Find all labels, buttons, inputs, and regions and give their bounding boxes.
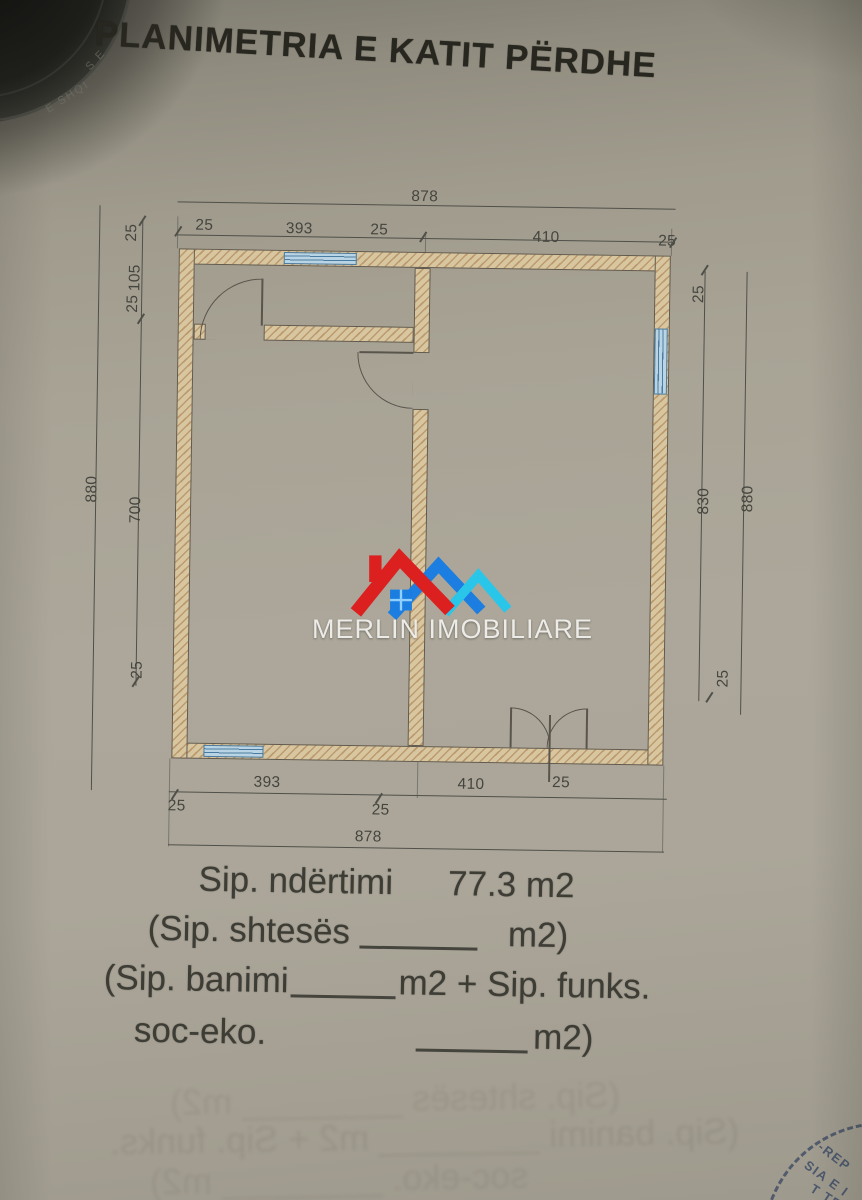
area-line-banimi: (Sip. banimim2 + Sip. funks.	[103, 958, 650, 1008]
area-line-shteses: (Sip. shtesësm2)	[147, 909, 568, 956]
area-label: (Sip. banimi	[104, 958, 289, 1000]
extension-line	[671, 229, 672, 256]
extension-line	[425, 232, 426, 252]
area-unit: m2 + Sip. funks.	[398, 963, 651, 1006]
scanned-floorplan-page: E SHQI S E PLANIMETRIA E KATIT PËRDHE 87…	[0, 0, 862, 1200]
dim-label: 25	[128, 650, 147, 690]
area-label: Sip. ndërtimi	[198, 860, 393, 902]
area-summary: Sip. ndërtimi77.3 m2 (Sip. shtesësm2) (S…	[100, 858, 784, 1085]
blank-fill-line	[360, 946, 478, 951]
dim-label: 25	[541, 774, 581, 793]
dim-leader-label: 25	[157, 797, 197, 816]
wall-exterior-left	[171, 248, 195, 758]
extension-line	[417, 762, 419, 798]
door-leaf	[261, 279, 264, 326]
dim-label: 25	[690, 274, 709, 314]
blank-fill-line	[416, 1049, 528, 1054]
dim-leader-label: 25	[360, 801, 400, 820]
dim-label: 25	[123, 213, 142, 253]
area-value: 77.3 m2	[448, 864, 575, 905]
dim-label-left-total: 880	[83, 469, 102, 509]
dim-label-bottom-total: 878	[348, 828, 388, 847]
area-label: (Sip. shtesës	[147, 909, 350, 952]
page-title: PLANIMETRIA E KATIT PËRDHE	[94, 14, 658, 86]
dim-label: 393	[247, 773, 287, 792]
dim-label: 410	[526, 229, 566, 248]
area-unit: m2)	[533, 1018, 594, 1058]
dim-line-bottom-outer	[168, 844, 664, 852]
wall-vestibule	[264, 325, 414, 343]
extension-line	[662, 766, 664, 852]
ghost-bleed-text: soc-eko. ________ m2)	[150, 1155, 529, 1200]
area-line-ndertimi: Sip. ndërtimi77.3 m2	[198, 860, 575, 907]
window-top	[284, 252, 357, 265]
round-stamp-bottom-right: -REP SIA E I T TE	[762, 1122, 862, 1200]
dim-label: 25	[647, 232, 687, 251]
dim-label: 830	[695, 481, 714, 521]
dim-label: 393	[279, 220, 319, 239]
house-roofs-icon	[312, 544, 547, 620]
window-right	[654, 328, 668, 394]
dim-label-top-total: 878	[405, 188, 445, 207]
window-bottom	[203, 745, 263, 758]
door-swing-arc	[357, 352, 414, 409]
area-label: soc-eko.	[134, 1011, 267, 1052]
door-swing-arc	[200, 278, 263, 341]
dim-label: 410	[451, 775, 491, 794]
blank-fill-line	[290, 994, 395, 999]
area-unit: m2)	[508, 915, 569, 955]
logo-watermark: MERLIN IMOBILIARE	[312, 544, 547, 645]
dim-label: 25	[184, 216, 224, 235]
logo-text: MERLIN IMOBILIARE	[312, 614, 547, 645]
floor-plan-drawing: 878 25 393 25 410 25 880 25 105 25 700 2…	[75, 175, 775, 885]
stamp-text-fragment: E SHQI	[44, 79, 92, 116]
dim-label: 25	[359, 221, 399, 240]
dim-label: 700	[127, 490, 146, 530]
area-line-soceko: soc-eko.m2)	[134, 1011, 594, 1059]
double-door-right-arc	[547, 708, 588, 749]
dim-label-right-total: 880	[739, 479, 758, 519]
dim-tick	[705, 692, 713, 703]
wall-partition-upper	[413, 268, 430, 353]
double-door-left-arc	[511, 707, 552, 748]
dim-label: 25	[714, 658, 733, 698]
